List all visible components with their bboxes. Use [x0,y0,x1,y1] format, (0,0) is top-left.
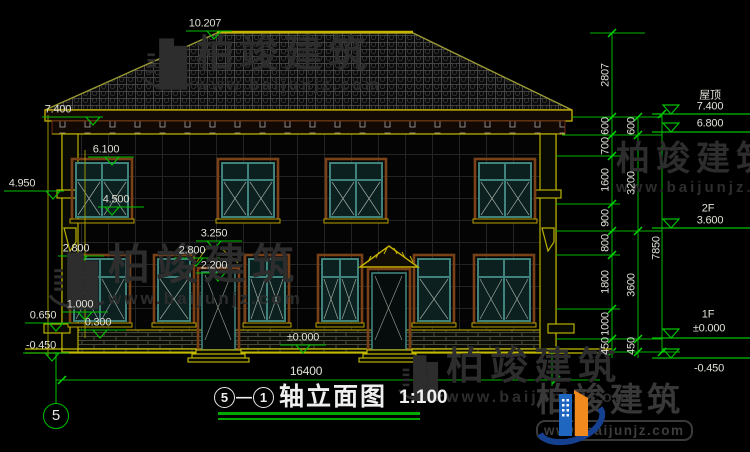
dim-chain: 1800 [601,270,612,294]
dim-chain: 1000 [601,312,612,336]
title-underline-thin [218,418,420,420]
dim-chain: 1600 [601,168,612,192]
level-right: ±0.000 [693,324,725,335]
level-left: 0.300 [85,318,112,329]
dim-chain: 2807 [601,63,612,87]
brand-logo-block: 柏竣建筑 www.baijunjz.com [532,382,693,441]
dim-chain: 600 [601,117,612,135]
title-text: 轴立面图 [279,385,387,410]
level-left: 0.650 [30,311,57,322]
level-left: -0.450 [26,341,56,352]
level-left: 6.100 [93,145,120,156]
level-floor: ±0.000 [287,333,319,344]
dim-width-total: 16400 [290,365,322,377]
level-left: 7.400 [45,105,72,116]
level-ridge: 10.207 [189,19,221,30]
level-right: 2F [702,204,714,215]
level-left: 2.200 [201,261,228,272]
level-left: 4.500 [103,195,130,206]
dim-chain: 450 [627,337,638,355]
level-left: 1.000 [67,300,94,311]
level-left: 2.800 [63,244,90,255]
level-right: 7.400 [697,102,724,113]
drawing-title: 5 — 1 轴立面图 1:100 [214,385,448,410]
dim-chain: 700 [601,137,612,155]
title-scale: 1:100 [399,388,448,407]
level-right: 6.800 [697,119,724,130]
level-right: 3.600 [697,216,724,227]
level-left: 4.950 [9,179,36,190]
dim-chain: 3600 [627,273,638,297]
level-left: 2.800 [179,246,206,257]
cad-elevation-canvas[interactable]: 柏竣建筑 www.baijunjz.com 柏竣建筑 www.baijunjz.… [0,0,750,452]
level-right: 1F [702,310,714,321]
title-dash: — [236,390,252,406]
dim-height-total: 7850 [652,236,663,260]
title-underline-thick [218,412,420,415]
level-left: 3.250 [201,229,228,240]
axis-bubble-5: 5 [43,403,69,429]
dim-chain: 600 [627,117,638,135]
dim-chain: 3200 [627,171,638,195]
dim-chain: 900 [601,209,612,227]
axis-circle-end: 1 [253,387,274,408]
dim-chain: 450 [601,337,612,355]
dim-chain: 800 [601,234,612,252]
level-right: -0.450 [694,364,724,375]
axis-circle-start: 5 [214,387,235,408]
brand-logo-icon [532,382,606,450]
